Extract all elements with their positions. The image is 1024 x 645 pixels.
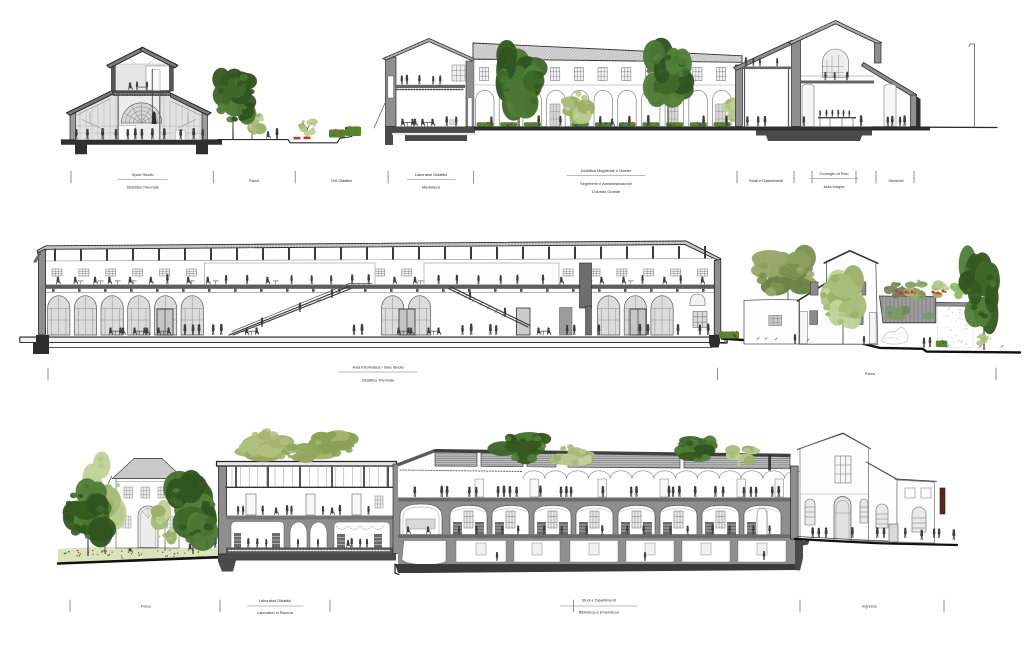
svg-text:Segreterie e Amministrazione/: Segreterie e Amministrazione/ (580, 181, 633, 186)
svg-text:Didattica Triennale: Didattica Triennale (362, 378, 394, 383)
svg-text:Seminari: Seminari (888, 178, 903, 183)
svg-text:Parco: Parco (249, 178, 259, 183)
svg-text:Laboratori Didattici: Laboratori Didattici (259, 598, 292, 603)
svg-text:Orti Didattici: Orti Didattici (331, 178, 352, 183)
svg-text:Aula Informatica / Sala Studio: Aula Informatica / Sala Studio (352, 365, 403, 370)
svg-text:Laboratori di Ricerca: Laboratori di Ricerca (257, 610, 294, 615)
svg-text:Studi e Dipartimenti: Studi e Dipartimenti (749, 178, 783, 183)
svg-text:Studi e Dipartimenti: Studi e Dipartimenti (582, 598, 616, 603)
svg-text:Didattica Triennale: Didattica Triennale (127, 185, 159, 190)
svg-text:Ingresso: Ingresso (862, 604, 877, 609)
svg-text:Parco: Parco (141, 604, 151, 609)
svg-text:Laboratori Didattici: Laboratori Didattici (415, 172, 448, 177)
svg-text:Mediateca: Mediateca (422, 185, 441, 190)
svg-text:Parco: Parco (865, 371, 875, 376)
svg-text:Consiglio di Polo: Consiglio di Polo (820, 171, 849, 176)
svg-text:Spazi Studio: Spazi Studio (132, 172, 154, 177)
svg-text:Aula Magna: Aula Magna (824, 184, 846, 189)
svg-text:Chiostro Grande: Chiostro Grande (592, 189, 621, 194)
svg-text:Biblioteca e Emeroteca: Biblioteca e Emeroteca (579, 610, 620, 615)
svg-text:Didattica Magistrale e Master: Didattica Magistrale e Master (581, 168, 632, 173)
